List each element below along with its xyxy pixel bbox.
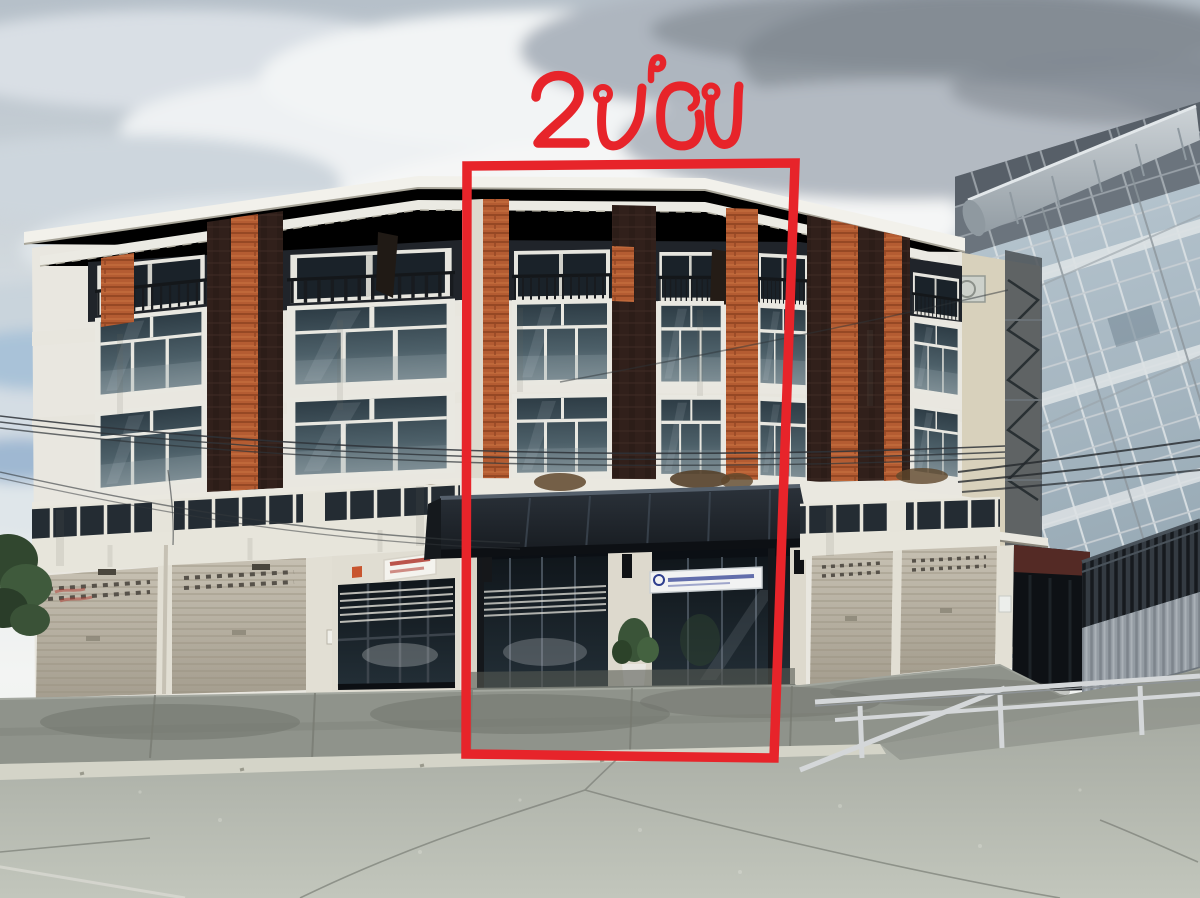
column: [306, 556, 332, 694]
photo-building-listing: 2 ห้อง: [0, 0, 1200, 898]
roller-shutter-4: [900, 546, 997, 674]
small-sign: [352, 566, 362, 578]
ground-center-units: [424, 486, 812, 706]
main-building: [24, 176, 1014, 706]
ground-left-wing: [32, 484, 460, 698]
road: [0, 664, 1200, 898]
alley-gap: [1012, 545, 1090, 692]
roller-shutter-3: [810, 551, 893, 686]
storefront-unit-left: [332, 548, 460, 692]
wall-lamp: [482, 556, 492, 582]
photo-canvas: [0, 0, 1200, 898]
roller-shutter-2: [172, 558, 308, 694]
roller-shutter-1: [36, 567, 160, 698]
company-sign: [650, 567, 762, 593]
downpipe: [164, 545, 166, 694]
wall-lamp: [622, 554, 632, 578]
